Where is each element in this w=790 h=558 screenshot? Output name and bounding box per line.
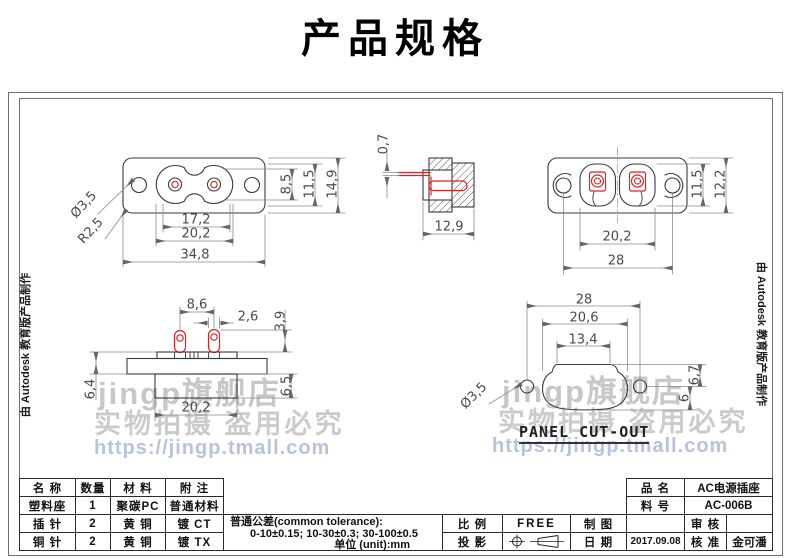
edge-note-right: 由 Autodesk 教育版产品制作: [754, 239, 770, 429]
scale-value: FREE: [502, 514, 571, 533]
dim-cutout-right-upper: 6,7: [688, 365, 703, 386]
tolerance-line3: 单位 (unit):mm: [230, 540, 438, 552]
dim-side-pin-width: 2,6: [238, 310, 259, 325]
drawing-linework: [0, 0, 790, 558]
part-number-value: AC-006B: [684, 496, 773, 515]
first-angle-projection-icon: [508, 534, 566, 549]
dim-side-pin-span: 8,6: [187, 298, 208, 313]
dim-rear-hole-span: 28: [608, 254, 625, 269]
date-value: 2017.09.08: [626, 532, 685, 551]
page-title: 产品规格: [0, 6, 790, 64]
parts-row2-name: 插 针: [19, 514, 76, 533]
dim-side-body-height: 6,5: [280, 376, 295, 397]
parts-header-name: 名 称: [19, 478, 76, 497]
dim-side-pin-height: 3,9: [274, 311, 289, 332]
part-number-label: 料 号: [626, 496, 685, 515]
dim-front-recess-width: 20,2: [182, 227, 211, 242]
tolerance-note: 普通公差(common tolerance): 0-10±0.15; 10-30…: [223, 514, 443, 551]
review-value: [726, 514, 773, 533]
dim-front-inner-height: 11,5: [303, 170, 318, 199]
parts-row1-note: 普通材料: [165, 496, 224, 515]
dim-cutout-top-width: 13,4: [569, 333, 598, 348]
dim-front-pin-span: 17,2: [182, 213, 211, 228]
dim-front-recess-height: 8,5: [280, 174, 295, 195]
scale-label: 比 例: [442, 514, 503, 533]
review-label: 审 核: [684, 514, 727, 533]
parts-row2-qty: 2: [75, 514, 111, 533]
parts-header-qty: 数量: [75, 478, 111, 497]
approve-label: 核 准: [684, 532, 727, 551]
tolerance-line1: 普通公差(common tolerance):: [230, 517, 438, 529]
dim-section-depth: 12,9: [435, 220, 464, 235]
dim-side-body-width: 20,2: [182, 401, 211, 416]
parts-row2-note: 镀 CT: [165, 514, 224, 533]
dim-rear-inner-height: 11,5: [691, 170, 706, 199]
parts-header-note: 附 注: [165, 478, 224, 497]
parts-row2-material: 黄 铜: [110, 514, 166, 533]
drawn-value: [626, 514, 685, 533]
parts-row1-qty: 1: [75, 496, 111, 515]
dim-section-pin-thickness: 0,7: [377, 134, 392, 155]
dim-cutout-hole-span: 28: [576, 293, 593, 308]
parts-header-material: 材 料: [110, 478, 166, 497]
parts-row3-name: 铜 针: [19, 532, 76, 551]
drawn-label: 制 图: [570, 514, 627, 533]
dim-cutout-right-lower: 6: [678, 394, 693, 402]
product-name-label: 品 名: [626, 478, 685, 497]
dim-front-total-width: 34,8: [181, 248, 210, 263]
parts-row3-note: 镀 TX: [165, 532, 224, 551]
projection-label: 投 影: [442, 532, 503, 551]
cutout-caption: PANEL CUT-OUT: [519, 423, 649, 444]
parts-row3-material: 黄 铜: [110, 532, 166, 551]
product-name-value: AC电源插座: [684, 478, 773, 497]
date-label: 日 期: [570, 532, 627, 551]
parts-row1-material: 聚碳PC: [110, 496, 166, 515]
dim-rear-total-height: 12,2: [714, 170, 729, 199]
parts-row3-qty: 2: [75, 532, 111, 551]
drawing-sheet: 产品规格 jingp旗舰店 实物拍摄 盗用必究 https://jingp.tm…: [0, 0, 790, 558]
projection-symbol: [502, 532, 571, 551]
dim-cutout-outer-width: 20,6: [570, 311, 599, 326]
dim-rear-recess-width: 20,2: [603, 230, 632, 245]
dim-side-flange-height: 6,4: [84, 379, 99, 400]
parts-row1-name: 塑料座: [19, 496, 76, 515]
dim-front-total-height: 14,9: [326, 170, 341, 199]
approve-value: 金可潘: [726, 532, 773, 551]
edge-note-left: 由 Autodesk 教育版产品制作: [17, 250, 33, 440]
